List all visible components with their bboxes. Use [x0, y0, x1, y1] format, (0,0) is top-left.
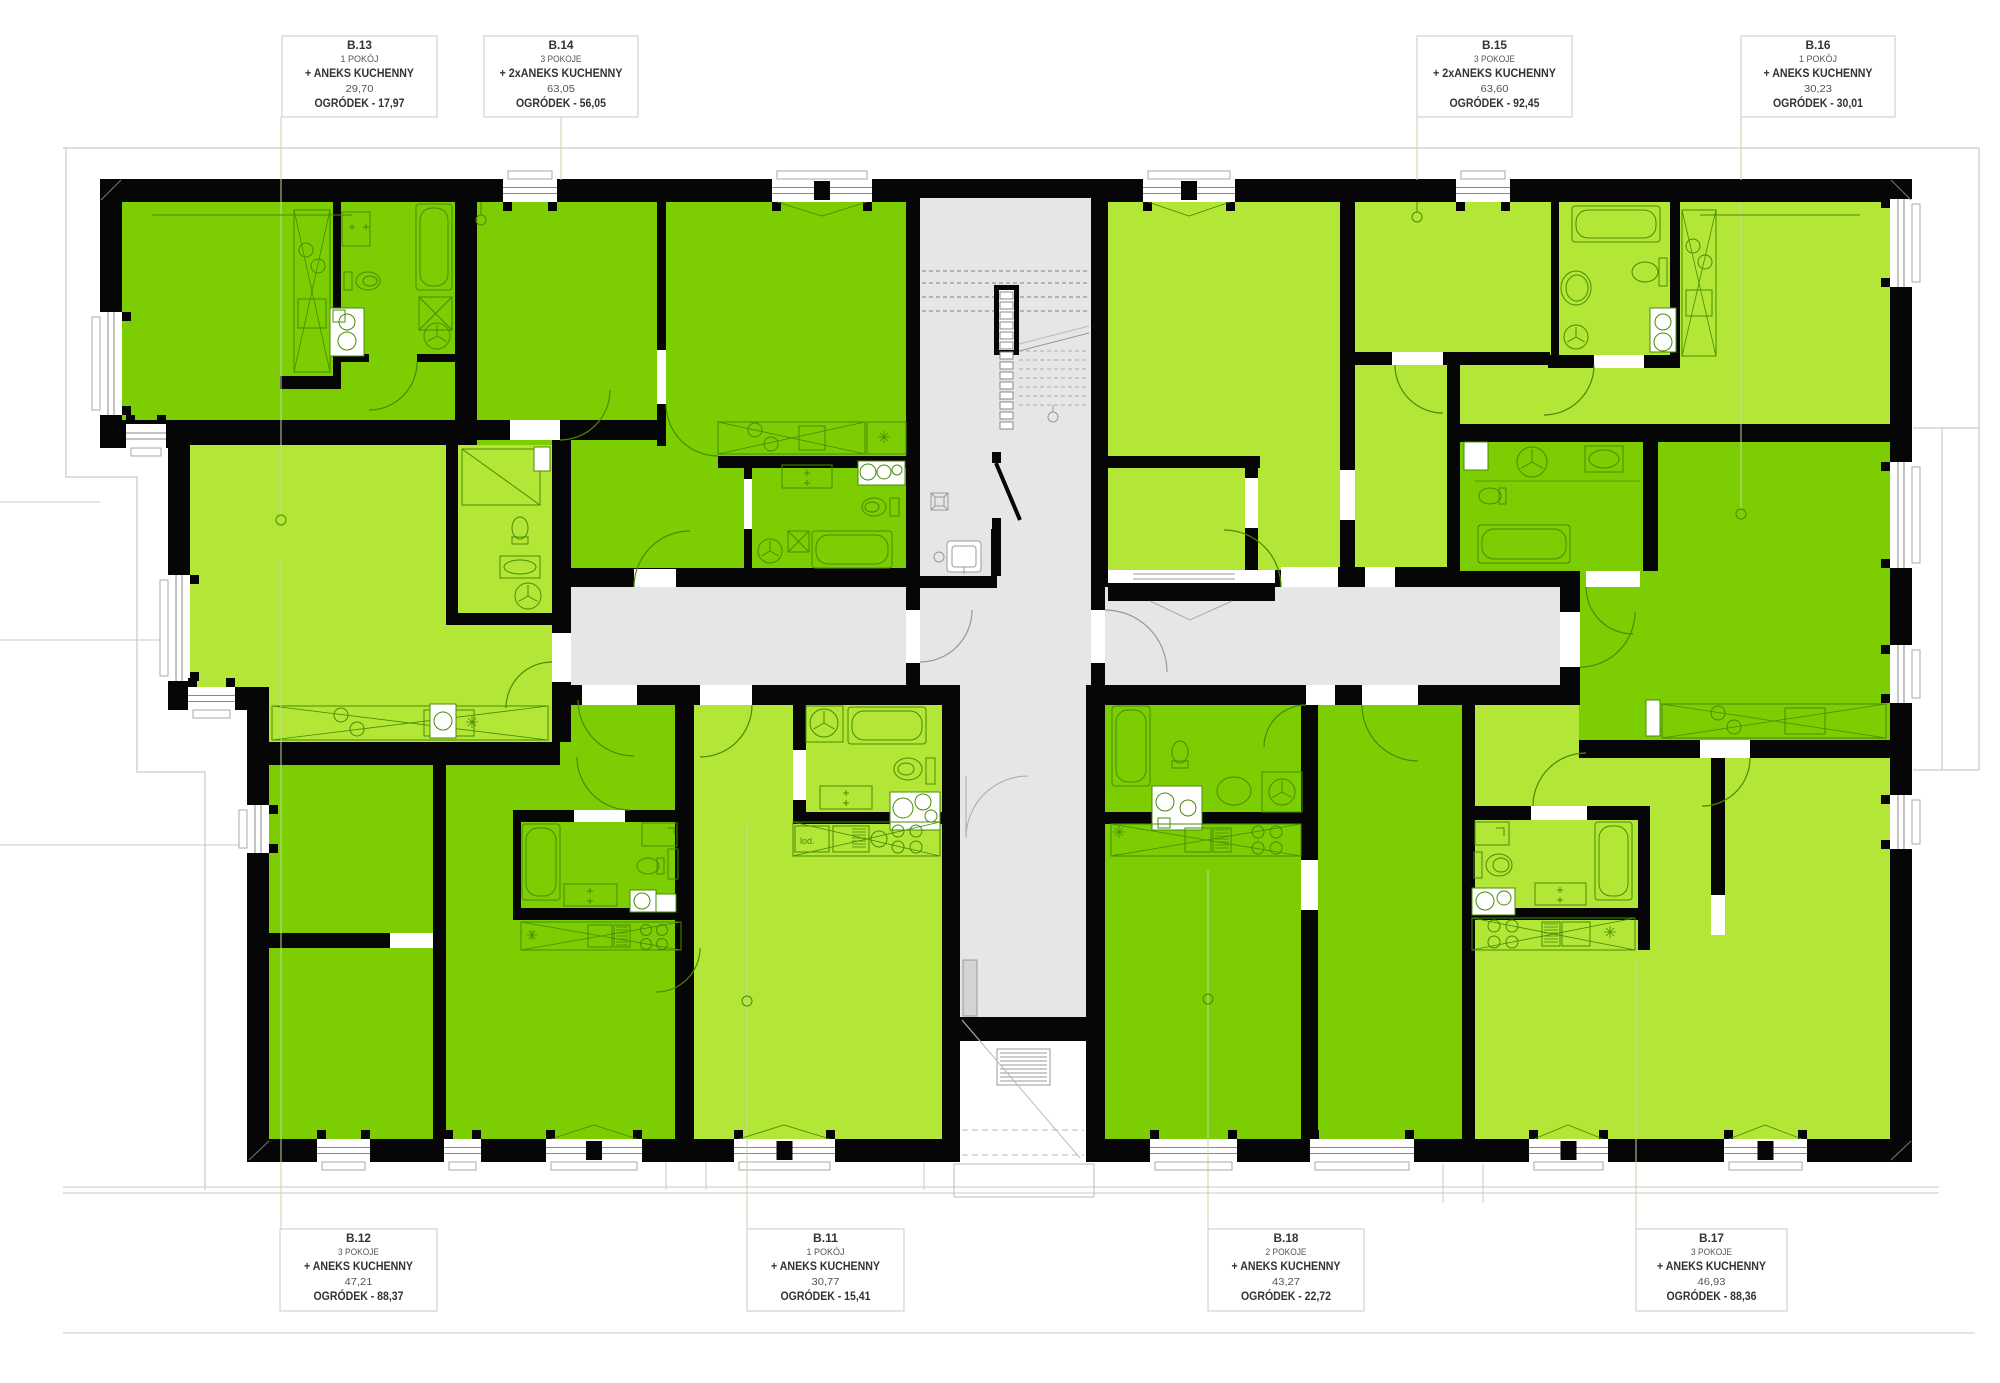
svg-text:B.11: B.11	[813, 1231, 838, 1245]
svg-text:30,77: 30,77	[812, 1277, 840, 1288]
svg-text:1 POKÓJ: 1 POKÓJ	[341, 54, 379, 65]
svg-text:B.16: B.16	[1806, 38, 1831, 52]
svg-text:OGRÓDEK - 17,97: OGRÓDEK - 17,97	[315, 95, 405, 110]
svg-text:47,21: 47,21	[345, 1277, 373, 1288]
svg-text:B.18: B.18	[1274, 1231, 1299, 1245]
svg-text:B.17: B.17	[1699, 1231, 1724, 1245]
svg-text:30,23: 30,23	[1804, 84, 1832, 95]
svg-text:OGRÓDEK - 15,41: OGRÓDEK - 15,41	[781, 1288, 871, 1303]
svg-text:B.14: B.14	[549, 38, 574, 52]
svg-text:29,70: 29,70	[346, 84, 374, 95]
svg-text:+ ANEKS KUCHENNY: + ANEKS KUCHENNY	[304, 1259, 413, 1273]
svg-text:3 POKOJE: 3 POKOJE	[1691, 1247, 1732, 1258]
svg-text:+ ANEKS KUCHENNY: + ANEKS KUCHENNY	[1232, 1259, 1341, 1273]
svg-text:OGRÓDEK - 92,45: OGRÓDEK - 92,45	[1450, 95, 1540, 110]
svg-text:+ 2xANEKS KUCHENNY: + 2xANEKS KUCHENNY	[500, 66, 623, 80]
svg-text:1 POKÓJ: 1 POKÓJ	[1799, 54, 1837, 65]
svg-text:3 POKOJE: 3 POKOJE	[1474, 54, 1515, 65]
svg-text:43,27: 43,27	[1272, 1277, 1300, 1288]
svg-text:B.13: B.13	[347, 38, 372, 52]
svg-text:OGRÓDEK - 56,05: OGRÓDEK - 56,05	[516, 95, 606, 110]
svg-text:OGRÓDEK - 30,01: OGRÓDEK - 30,01	[1773, 95, 1863, 110]
svg-text:3 POKOJE: 3 POKOJE	[541, 54, 582, 65]
svg-text:lod.: lod.	[800, 836, 815, 846]
svg-text:B.15: B.15	[1482, 38, 1507, 52]
svg-text:OGRÓDEK - 22,72: OGRÓDEK - 22,72	[1241, 1288, 1331, 1303]
svg-text:63,60: 63,60	[1481, 84, 1509, 95]
svg-text:2 POKOJE: 2 POKOJE	[1266, 1247, 1307, 1258]
svg-text:OGRÓDEK - 88,36: OGRÓDEK - 88,36	[1667, 1288, 1757, 1303]
svg-text:OGRÓDEK - 88,37: OGRÓDEK - 88,37	[314, 1288, 404, 1303]
svg-text:+ ANEKS KUCHENNY: + ANEKS KUCHENNY	[1764, 66, 1873, 80]
svg-text:3 POKOJE: 3 POKOJE	[338, 1247, 379, 1258]
svg-text:+ ANEKS KUCHENNY: + ANEKS KUCHENNY	[1657, 1259, 1766, 1273]
svg-text:+ 2xANEKS KUCHENNY: + 2xANEKS KUCHENNY	[1433, 66, 1556, 80]
svg-text:B.12: B.12	[346, 1231, 371, 1245]
svg-text:+ ANEKS KUCHENNY: + ANEKS KUCHENNY	[771, 1259, 880, 1273]
svg-text:+ ANEKS KUCHENNY: + ANEKS KUCHENNY	[305, 66, 414, 80]
svg-text:1 POKÓJ: 1 POKÓJ	[807, 1247, 845, 1258]
svg-text:46,93: 46,93	[1698, 1277, 1726, 1288]
svg-text:63,05: 63,05	[547, 84, 575, 95]
